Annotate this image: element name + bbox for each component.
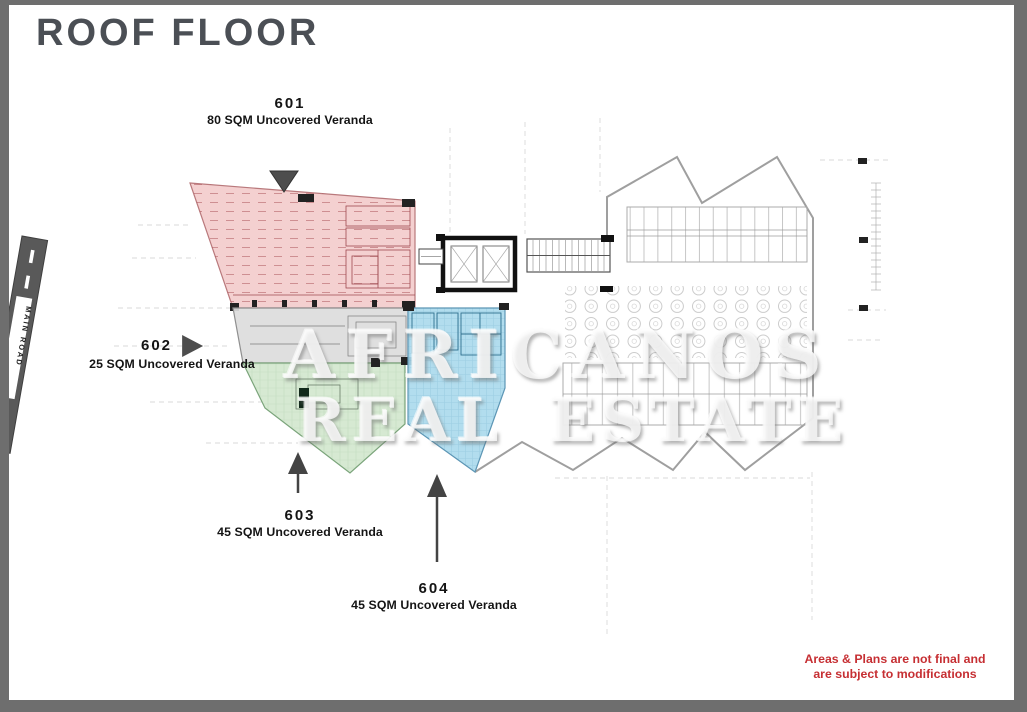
unit-601-description: 80 SQM Uncovered Veranda [207,113,373,128]
ruler-anchors [858,158,868,311]
disclaimer-line2: are subject to modifications [799,667,991,682]
unit-601-number: 601 [207,95,373,113]
unit-602-description: 25 SQM Uncovered Veranda [89,357,255,372]
floor-plan-sheet: MAIN ROAD AFRICANOS REAL ESTATE ROOF FLO… [0,0,1027,712]
disclaimer-line1: Areas & Plans are not final and [799,652,991,667]
pergola-circles-grid [565,286,807,358]
panel-grid-bottom [563,363,807,425]
unit-602-pointer-icon [182,335,203,357]
page-title: ROOF FLOOR [36,12,319,55]
unit-603-arrow-icon [288,452,308,493]
staircase [527,239,610,272]
unit-604-region [403,303,509,472]
unit-604-label: 604 45 SQM Uncovered Veranda [351,580,517,613]
unit-603-region [243,357,412,473]
unit-603-description: 45 SQM Uncovered Veranda [217,525,383,540]
unit-604-arrow-icon [427,474,447,562]
unit-601-pointer-icon [270,171,298,192]
main-road: MAIN ROAD [0,236,48,453]
panel-grid-top [627,207,807,262]
unit-601-label: 601 80 SQM Uncovered Veranda [207,95,373,128]
unit-602-region [233,308,408,363]
unit-604-description: 45 SQM Uncovered Veranda [351,598,517,613]
unit-601-region [190,183,415,311]
dimension-ruler [871,183,881,290]
unit-603-number: 603 [217,507,383,525]
disclaimer-note: Areas & Plans are not final and are subj… [799,652,991,681]
unit-604-number: 604 [351,580,517,598]
unit-602-label: 602 25 SQM Uncovered Veranda [89,335,255,372]
unit-602-number: 602 [141,337,172,355]
unit-603-label: 603 45 SQM Uncovered Veranda [217,507,383,540]
